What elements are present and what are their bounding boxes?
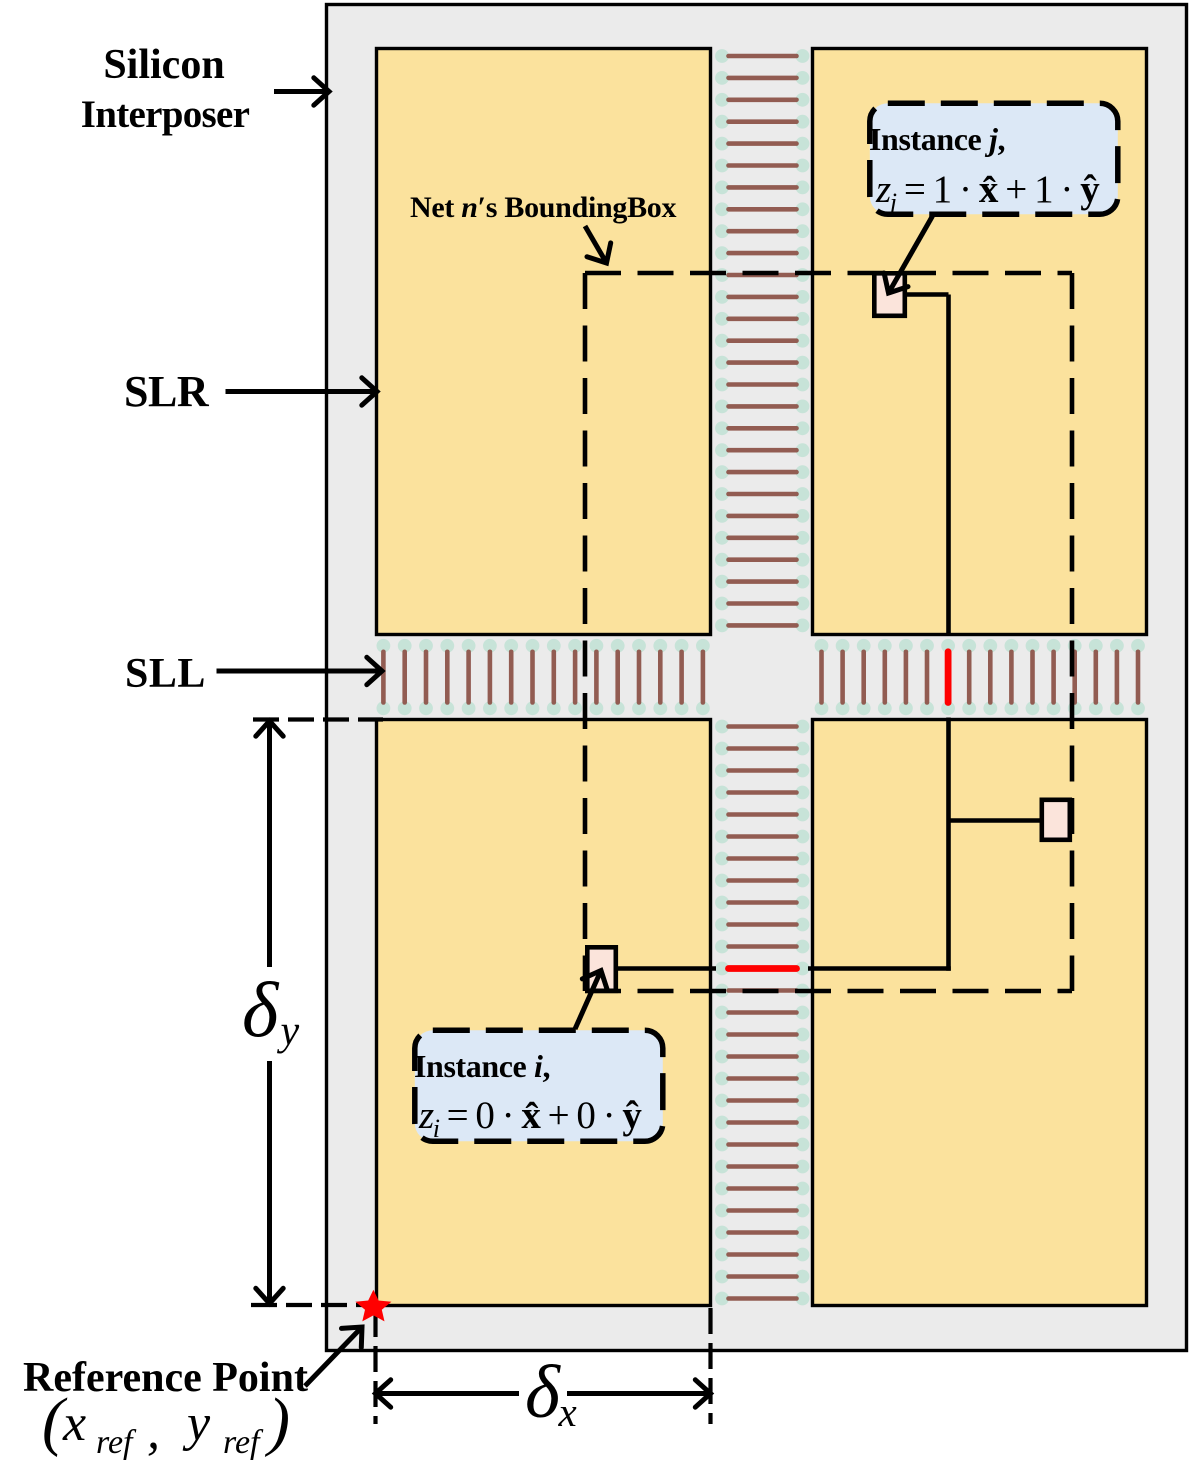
- svg-text:x: x: [62, 1395, 86, 1452]
- svg-text:Interposer: Interposer: [81, 93, 250, 136]
- svg-text:SLL: SLL: [125, 651, 206, 697]
- svg-text:ref: ref: [96, 1424, 137, 1461]
- svg-text:Instance i,: Instance i,: [414, 1048, 550, 1084]
- svg-text:δ: δ: [242, 966, 280, 1053]
- svg-text:SLR: SLR: [124, 367, 210, 416]
- svg-text:Instance j,: Instance j,: [869, 121, 1005, 157]
- svg-text:,: ,: [147, 1403, 160, 1460]
- svg-text:zi = 0 · x̂ + 0 · ŷ: zi = 0 · x̂ + 0 · ŷ: [418, 1094, 642, 1143]
- svg-text:): ): [264, 1385, 290, 1458]
- svg-text:zj = 1 · x̂ + 1 · ŷ: zj = 1 · x̂ + 1 · ŷ: [875, 168, 1100, 217]
- svg-text:Net n′s BoundingBox: Net n′s BoundingBox: [410, 191, 676, 224]
- svg-text:Silicon: Silicon: [103, 42, 224, 88]
- svg-text:y: y: [277, 1009, 300, 1055]
- svg-text:x: x: [558, 1389, 577, 1435]
- svg-text:ref: ref: [223, 1424, 264, 1461]
- svg-text:δ: δ: [525, 1351, 561, 1434]
- svg-text:y: y: [182, 1395, 211, 1452]
